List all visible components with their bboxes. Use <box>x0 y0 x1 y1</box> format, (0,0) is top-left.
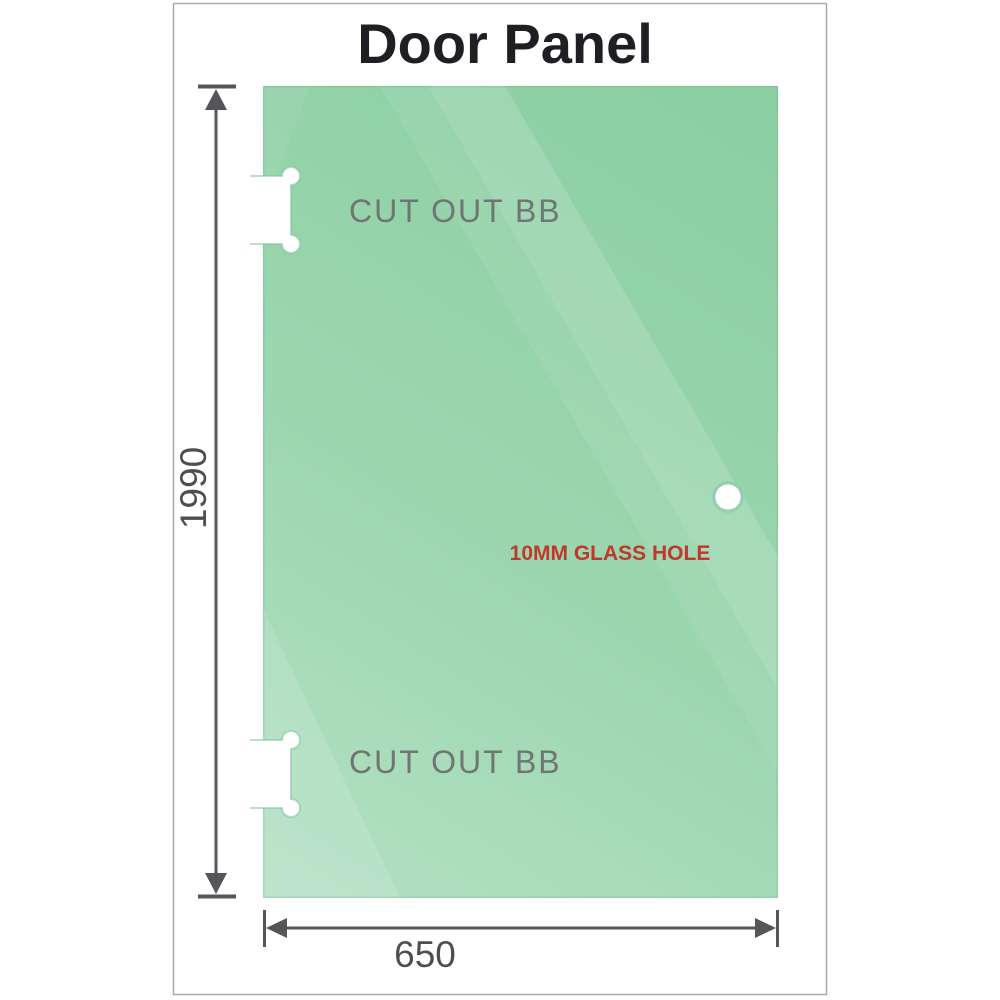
diagram-svg: 1990 650 Door Panel CUT OUT BB CUT OUT B… <box>0 0 1000 1000</box>
width-dimension <box>265 910 778 947</box>
height-dim-arrow-down <box>205 873 227 894</box>
width-dim-value: 650 <box>394 934 456 975</box>
height-dim-arrow-up <box>205 89 227 110</box>
width-dim-arrow-left <box>266 918 287 938</box>
door-panel-diagram: 1990 650 Door Panel CUT OUT BB CUT OUT B… <box>0 0 1000 1000</box>
width-dim-arrow-right <box>755 918 776 938</box>
diagram-title: Door Panel <box>357 12 653 75</box>
top-cutout-label: CUT OUT BB <box>349 193 562 229</box>
bottom-cutout-label: CUT OUT BB <box>349 744 562 780</box>
glass-hole-label: 10MM GLASS HOLE <box>510 542 711 565</box>
height-dim-value: 1990 <box>173 447 214 529</box>
